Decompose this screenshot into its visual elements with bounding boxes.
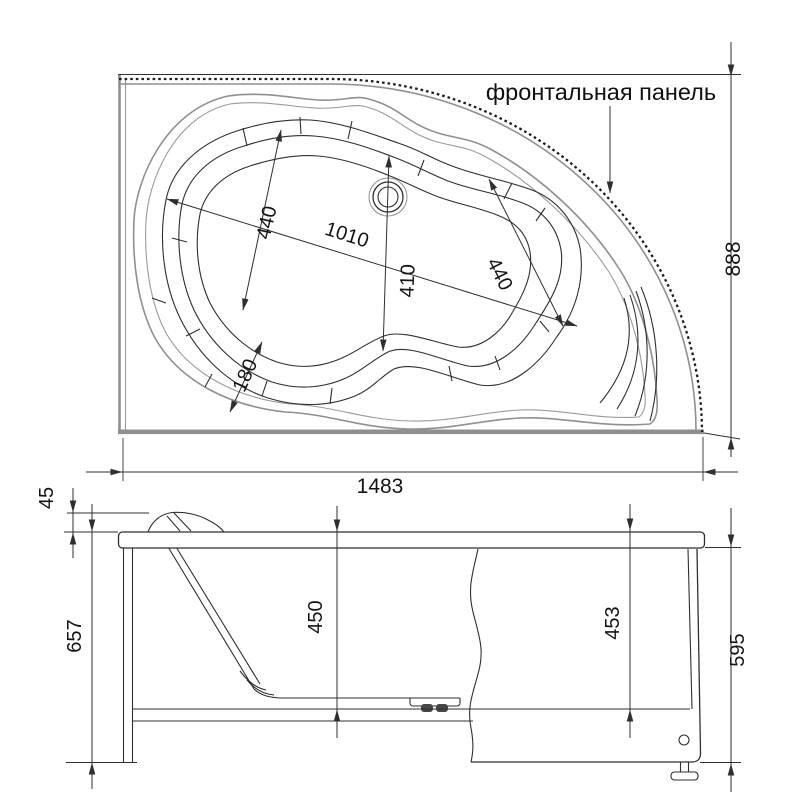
- rim-slab: [119, 532, 705, 548]
- dim-595: 595: [727, 508, 749, 792]
- dim-text-180: 180: [229, 356, 263, 395]
- dim-1483: 1483: [86, 437, 738, 498]
- frame-rails: [133, 709, 690, 721]
- dim-line-410: [383, 156, 389, 351]
- dim-text-440-head: 440: [253, 204, 282, 241]
- dim-45: 45: [36, 487, 73, 558]
- frontal-panel-label: фронтальная панель: [486, 79, 716, 105]
- drawing-svg: 440 1010 410 440 180 1483 888: [0, 0, 800, 800]
- headrest: [148, 512, 224, 532]
- bathtub-technical-drawing: 440 1010 410 440 180 1483 888: [0, 0, 800, 800]
- frame-legs: [124, 549, 133, 763]
- frontal-panel-edge: [119, 79, 702, 432]
- frontal-panel-inner-grey: [119, 84, 696, 431]
- dim-line-1010: [167, 199, 577, 326]
- dim-657: 657: [64, 504, 92, 789]
- dim-450: 450: [305, 506, 337, 738]
- dim-text-1010: 1010: [322, 218, 371, 252]
- dim-text-595: 595: [727, 633, 749, 666]
- dim-text-45: 45: [36, 487, 58, 509]
- corner-shelf-ridges: [600, 287, 657, 421]
- dim-text-440-foot: 440: [482, 254, 517, 294]
- dim-453: 453: [602, 504, 630, 738]
- bowl-floor-edge: [197, 156, 530, 367]
- dim-text-453: 453: [602, 606, 624, 639]
- dim-text-888: 888: [722, 241, 745, 276]
- dim-text-410: 410: [396, 264, 419, 298]
- panel-hole: [679, 735, 689, 745]
- bathtub-outer-edge: [134, 94, 658, 429]
- front-panel: [471, 549, 701, 762]
- top-view: 440 1010 410 440 180 1483 888: [86, 42, 745, 498]
- frontal-panel-callout: фронтальная панель: [486, 79, 716, 193]
- dim-text-657: 657: [64, 619, 86, 652]
- front-extension-lines: [64, 513, 741, 763]
- break-line: [470, 549, 482, 762]
- drain-trap: [410, 698, 460, 712]
- adjustable-foot: [671, 762, 698, 780]
- front-view: 45 657 450 453: [36, 487, 749, 792]
- dim-text-450: 450: [305, 600, 327, 633]
- dim-text-1483: 1483: [357, 475, 404, 498]
